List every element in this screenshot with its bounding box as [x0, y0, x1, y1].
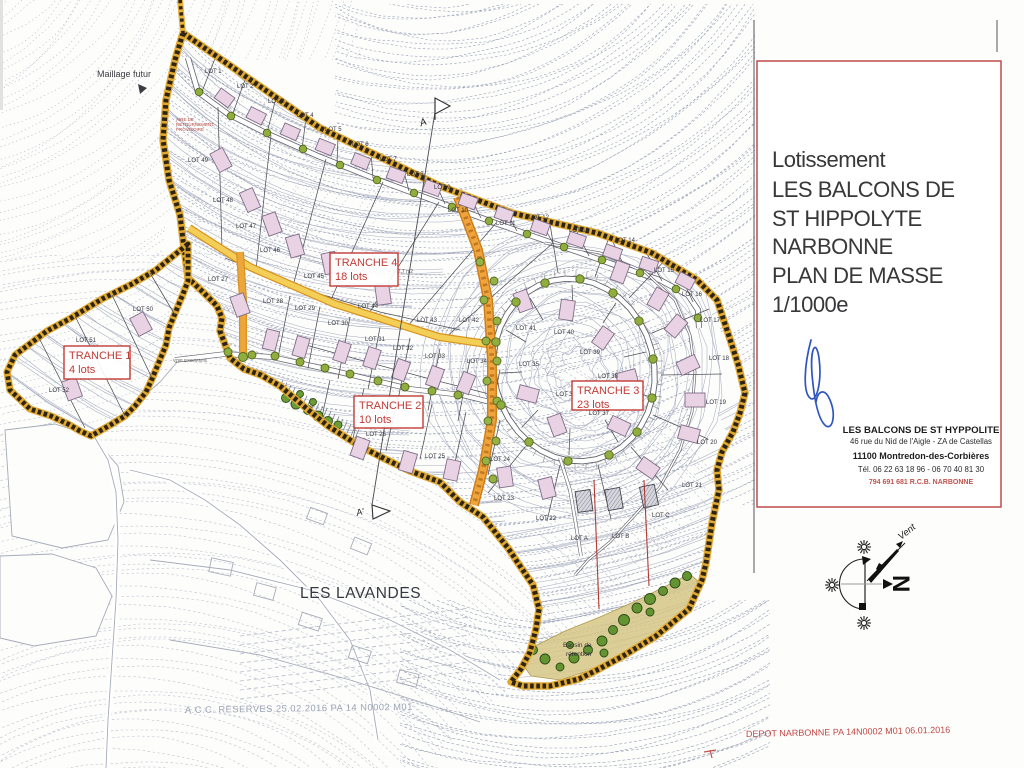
svg-text:LOT 4: LOT 4 — [297, 113, 314, 119]
svg-text:LOT 29: LOT 29 — [295, 306, 316, 312]
svg-text:LOT 52: LOT 52 — [49, 388, 70, 394]
svg-text:LOT 21: LOT 21 — [682, 483, 703, 489]
svg-text:LOT 17: LOT 17 — [700, 318, 721, 324]
svg-text:LOT 35: LOT 35 — [519, 362, 540, 368]
svg-text:LOT 42: LOT 42 — [459, 318, 480, 324]
svg-text:PROVISOIRE: PROVISOIRE — [176, 127, 204, 132]
svg-text:LOT 3: LOT 3 — [268, 99, 285, 105]
svg-text:LOT 22: LOT 22 — [536, 516, 557, 522]
svg-text:LOT 41: LOT 41 — [516, 326, 537, 332]
svg-text:LOT 44: LOT 44 — [358, 304, 379, 310]
svg-text:LOT 12: LOT 12 — [529, 215, 550, 221]
svg-text:rétention: rétention — [566, 651, 592, 658]
svg-text:LOT 37: LOT 37 — [589, 411, 610, 417]
svg-text:Lotissement: Lotissement — [772, 147, 886, 172]
svg-text:LOT 45: LOT 45 — [304, 274, 325, 280]
svg-text:LOT 5: LOT 5 — [325, 127, 342, 133]
svg-text:LOT 18: LOT 18 — [709, 356, 730, 362]
svg-text:TRANCHE 4: TRANCHE 4 — [335, 257, 397, 269]
svg-text:LOT 25: LOT 25 — [425, 454, 446, 460]
svg-text:LOT 46: LOT 46 — [260, 248, 281, 254]
svg-text:18 lots: 18 lots — [335, 271, 368, 283]
svg-text:LOT 23: LOT 23 — [494, 496, 515, 502]
svg-text:LOT 38: LOT 38 — [598, 374, 619, 380]
svg-text:LOT 31: LOT 31 — [365, 337, 386, 343]
svg-text:Maillage futur: Maillage futur — [97, 69, 151, 79]
svg-text:23 lots: 23 lots — [577, 399, 610, 411]
svg-text:VOIE EXISTANTE: VOIE EXISTANTE — [173, 358, 207, 363]
svg-text:LOT 34: LOT 34 — [467, 359, 488, 365]
svg-text:LOT 27: LOT 27 — [208, 277, 229, 283]
svg-text:TRANCHE 2: TRANCHE 2 — [359, 400, 421, 412]
svg-text:N: N — [887, 575, 914, 592]
svg-text:LOT 8: LOT 8 — [407, 172, 424, 178]
svg-text:LOT 7: LOT 7 — [380, 157, 397, 163]
svg-text:LOT A: LOT A — [571, 536, 588, 542]
svg-text:LOT 48: LOT 48 — [213, 198, 234, 204]
svg-text:LOT 1: LOT 1 — [205, 69, 222, 75]
svg-text:LOT 10: LOT 10 — [448, 208, 469, 214]
svg-text:ST HIPPOLYTE: ST HIPPOLYTE — [772, 206, 922, 231]
svg-text:LOT 2: LOT 2 — [237, 84, 254, 90]
svg-text:LOT B: LOT B — [612, 534, 629, 540]
svg-text:LOT 24: LOT 24 — [490, 457, 511, 463]
svg-text:LOT 49: LOT 49 — [188, 158, 209, 164]
svg-text:LOT 51: LOT 51 — [76, 338, 97, 344]
svg-text:LOT 50: LOT 50 — [133, 307, 154, 313]
svg-text:LOT 40: LOT 40 — [554, 330, 575, 336]
svg-text:LES LAVANDES: LES LAVANDES — [300, 585, 421, 602]
svg-text:LOT 13: LOT 13 — [569, 228, 590, 234]
svg-text:TRANCHE 3: TRANCHE 3 — [577, 385, 639, 397]
svg-text:LOT C: LOT C — [652, 513, 670, 519]
svg-text:4 lots: 4 lots — [69, 364, 96, 376]
svg-text:Tél. 06 22 63 18 96 - 06 70 40: Tél. 06 22 63 18 96 - 06 70 40 81 30 — [858, 465, 985, 474]
svg-text:Bassin de: Bassin de — [563, 642, 592, 649]
svg-text:LOT 11: LOT 11 — [496, 221, 516, 227]
svg-text:46 rue du Nid de l'Aigle - ZA: 46 rue du Nid de l'Aigle - ZA de Castell… — [850, 437, 992, 446]
svg-text:TRANCHE 1: TRANCHE 1 — [69, 350, 131, 362]
svg-text:10 lots: 10 lots — [359, 414, 392, 426]
svg-text:LOT 39: LOT 39 — [580, 350, 601, 356]
svg-text:PLAN DE MASSE: PLAN DE MASSE — [772, 263, 943, 288]
svg-text:LES BALCONS DE ST HYPPOLITE: LES BALCONS DE ST HYPPOLITE — [843, 425, 1000, 436]
svg-text:LOT 16: LOT 16 — [682, 292, 703, 298]
svg-text:LOT 14: LOT 14 — [615, 238, 636, 244]
svg-text:LOT 20: LOT 20 — [697, 440, 718, 446]
svg-text:LOT 19: LOT 19 — [706, 400, 727, 406]
svg-text:LOT 6: LOT 6 — [352, 142, 369, 148]
svg-text:11100 Montredon-des-Corbières: 11100 Montredon-des-Corbières — [853, 451, 990, 461]
svg-text:LOT 9: LOT 9 — [434, 185, 451, 191]
svg-text:LOT 15: LOT 15 — [654, 268, 675, 274]
svg-text:LOT 32: LOT 32 — [393, 346, 414, 352]
svg-text:LOT 30: LOT 30 — [328, 321, 349, 327]
svg-text:LES BALCONS DE: LES BALCONS DE — [772, 177, 955, 202]
svg-text:LOT 43: LOT 43 — [417, 318, 438, 324]
svg-text:794 691 681 R.C.B. NARBONNE: 794 691 681 R.C.B. NARBONNE — [869, 479, 974, 486]
svg-text:LOT 47: LOT 47 — [236, 224, 257, 230]
svg-text:NARBONNE: NARBONNE — [772, 234, 893, 259]
svg-text:LOT 33: LOT 33 — [425, 354, 446, 360]
svg-text:1/1000e: 1/1000e — [772, 292, 848, 317]
svg-text:LOT 28: LOT 28 — [263, 299, 284, 305]
